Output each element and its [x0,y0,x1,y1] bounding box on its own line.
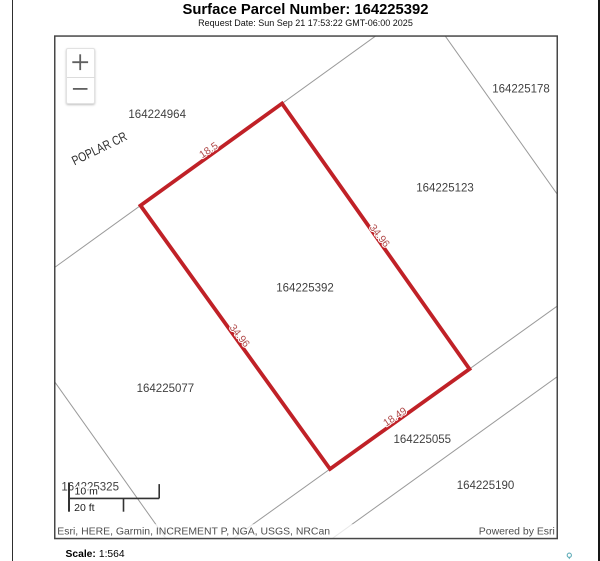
svg-text:Powered by Esri: Powered by Esri [479,527,555,538]
svg-text:164225077: 164225077 [137,383,195,395]
svg-text:34.96: 34.96 [227,323,252,350]
svg-text:10 m: 10 m [75,486,99,498]
svg-text:164225392: 164225392 [276,283,334,295]
svg-text:164224964: 164224964 [128,109,186,121]
svg-text:164225178: 164225178 [492,83,550,95]
svg-text:164225123: 164225123 [416,183,474,195]
svg-text:18.49: 18.49 [382,406,410,430]
svg-text:POPLAR CR: POPLAR CR [69,129,129,169]
svg-text:164225055: 164225055 [394,434,452,446]
svg-text:164225190: 164225190 [457,480,515,492]
svg-text:Esri, HERE, Garmin, INCREMENT: Esri, HERE, Garmin, INCREMENT P, NGA, US… [57,526,330,537]
svg-text:34.96: 34.96 [367,223,392,250]
svg-text:20 ft: 20 ft [74,502,95,514]
